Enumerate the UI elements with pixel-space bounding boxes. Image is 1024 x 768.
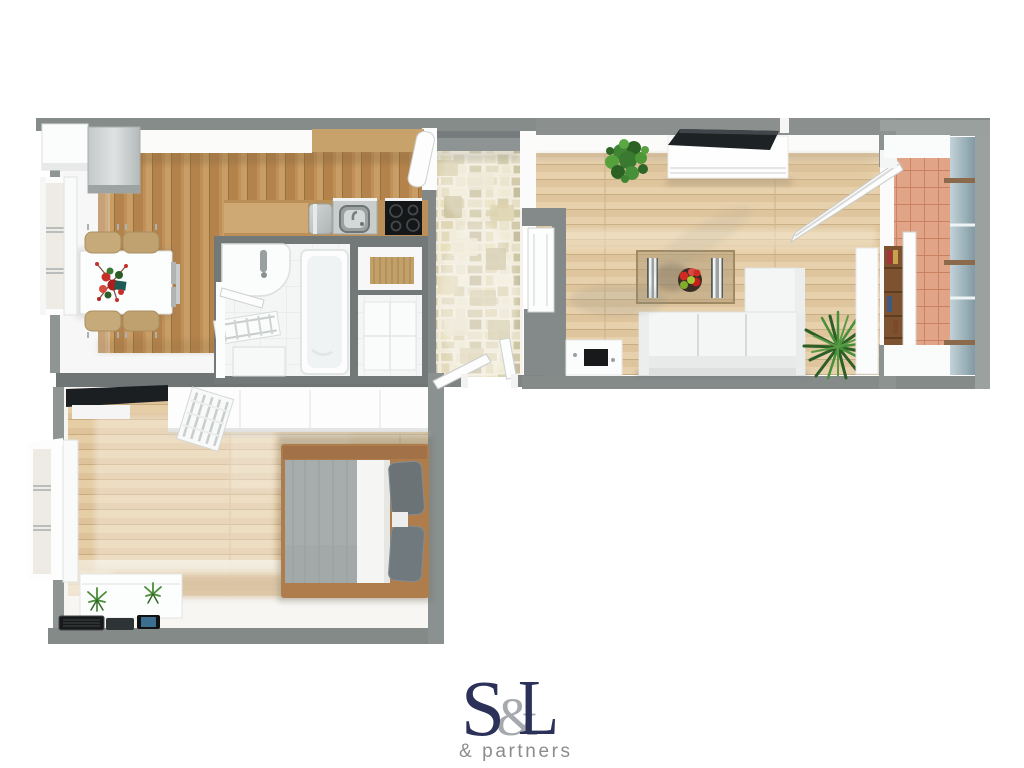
svg-text:S: S xyxy=(461,666,505,753)
svg-text:L: L xyxy=(518,665,559,752)
svg-text:& partners: & partners xyxy=(459,741,573,762)
